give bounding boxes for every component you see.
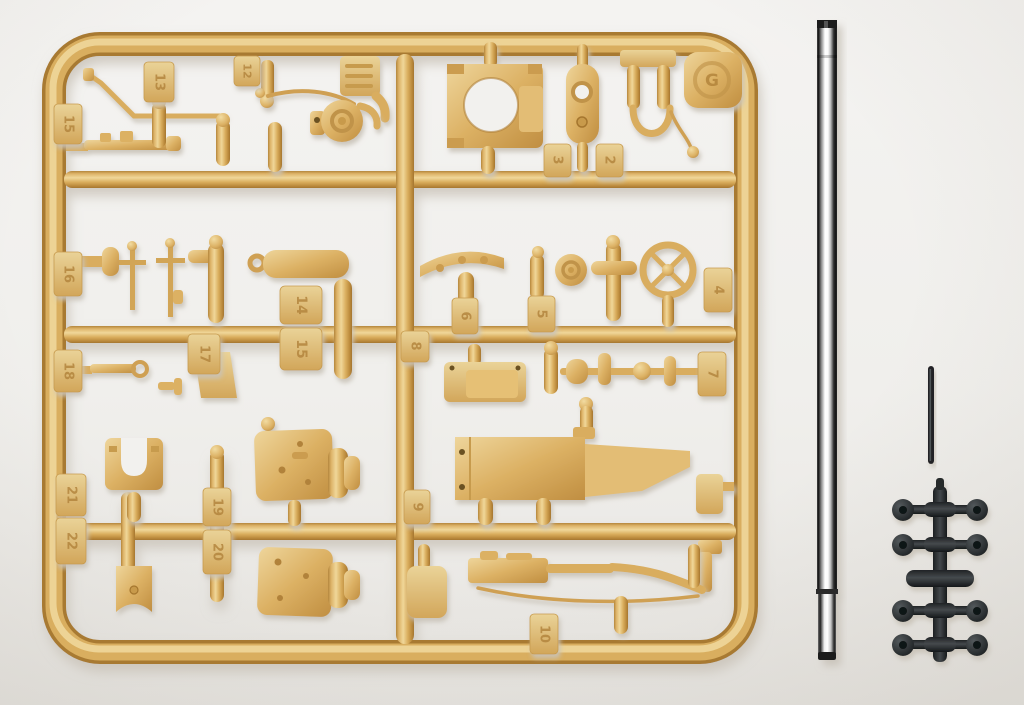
tag-label: 7 (705, 369, 720, 378)
tag: 15 (54, 104, 82, 144)
tag: 10 (530, 614, 558, 654)
tag-label: 15 (293, 339, 309, 358)
part-pin-a2 (216, 113, 230, 166)
part-pin-a1 (152, 95, 166, 148)
tag-label: 19 (210, 498, 225, 516)
tag: 15 (280, 328, 322, 370)
tag: 12 (234, 56, 260, 86)
tag-label: 8 (408, 341, 423, 350)
tag-label: 17 (197, 345, 212, 363)
tag: 5 (528, 296, 555, 332)
tag-label: 9 (410, 502, 425, 511)
tag-label: 5 (534, 309, 549, 318)
tag-label: 20 (210, 543, 225, 561)
tag-label: 13 (152, 73, 167, 91)
sprue-letter: G (705, 71, 719, 91)
tag: 16 (54, 252, 82, 296)
poly-bar-row (906, 570, 974, 587)
metal-gun-barrel (816, 20, 838, 660)
part-pin-c1 (544, 341, 558, 394)
tag: 13 (144, 62, 174, 102)
sprue-letter-emblem: G (684, 52, 742, 108)
tag: 2 (596, 144, 623, 177)
tag: 21 (56, 474, 86, 516)
tag: 8 (401, 331, 429, 362)
tag-label: 2 (602, 155, 617, 164)
tag-label: 12 (241, 63, 254, 78)
tag-label: 14 (293, 295, 309, 315)
tag-label: 3 (550, 155, 565, 164)
tag: 19 (203, 488, 231, 526)
metal-pin-rod (928, 366, 934, 464)
tag: 9 (404, 490, 430, 524)
tag-label: 10 (537, 625, 552, 643)
sprue-photo: G (0, 0, 1024, 705)
tag-label: 16 (61, 265, 76, 283)
tag-label: 22 (64, 532, 79, 550)
tag-label: 4 (711, 285, 726, 294)
tag: 4 (704, 268, 732, 312)
part-sleeve-cylinder (334, 279, 352, 379)
tag: 17 (188, 334, 220, 374)
tag-label: 6 (458, 311, 473, 320)
tag: 20 (203, 530, 231, 574)
tag-label: 15 (61, 115, 76, 133)
photo-stage: G (0, 0, 1024, 705)
tag: 22 (56, 518, 86, 564)
tag: 18 (54, 350, 82, 392)
tag: 7 (698, 352, 726, 396)
tag: 6 (452, 298, 478, 334)
tag: 3 (544, 144, 571, 177)
tag: 14 (280, 286, 322, 324)
tag-label: 21 (64, 486, 79, 504)
tag-label: 18 (61, 362, 76, 380)
